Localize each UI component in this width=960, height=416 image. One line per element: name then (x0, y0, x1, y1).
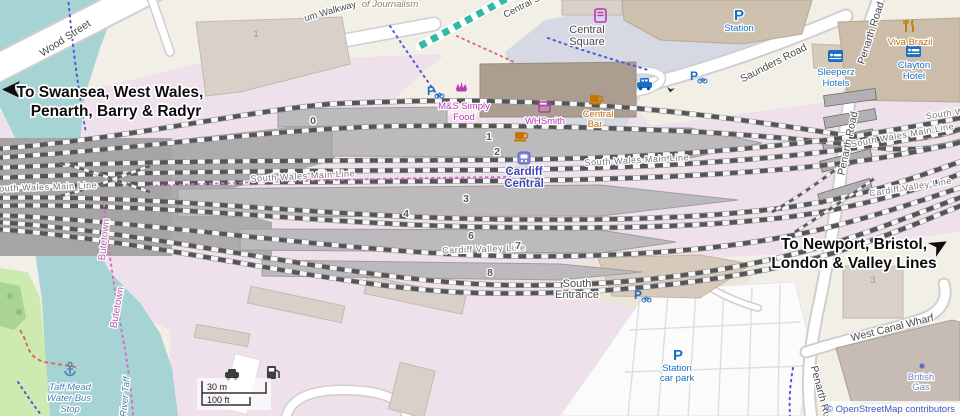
direction-east-line2: London & Valley Lines (771, 255, 936, 272)
scale-imperial: 100 ft (207, 395, 230, 405)
map-canvas[interactable]: P (0, 0, 960, 416)
building-3 (843, 266, 903, 318)
ms-simply-food-label: M&S Simply (438, 101, 490, 112)
tree-icon (7, 293, 13, 299)
central-square-label: Central (569, 24, 604, 36)
water-bus-stop-label: Taff Mead (49, 382, 92, 393)
platform-number: 3 (463, 193, 469, 205)
viva-brazil-label: Viva Brazil (888, 37, 933, 48)
svg-text:Central: Central (504, 178, 544, 190)
of-journalism-label: of Journalism (362, 0, 419, 10)
platform-number: 2 (494, 146, 500, 158)
office-dot-icon (919, 363, 924, 368)
sleeperz-label: Sleeperz (817, 67, 855, 78)
svg-text:Station: Station (724, 23, 754, 34)
platform-number: 1 (486, 131, 492, 143)
building-pink (562, 0, 622, 15)
svg-text:car park: car park (660, 373, 695, 384)
direction-east-line1: To Newport, Bristol, (781, 236, 927, 253)
east-arrow-icon (928, 235, 951, 257)
tree-icon (16, 309, 22, 315)
svg-text:Hotels: Hotels (823, 78, 850, 89)
oneway-arrow-icon (666, 87, 675, 93)
svg-text:Water Bus: Water Bus (47, 393, 91, 404)
osm-attribution-link[interactable]: © OpenStreetMap contributors (826, 404, 955, 415)
house-number: 3 (870, 275, 875, 286)
scale-bar: 30 m 100 ft (197, 378, 271, 410)
svg-text:P: P (634, 288, 642, 302)
direction-west: To Swansea, West Wales, Penarth, Barry &… (2, 81, 203, 120)
railway-station-icon (518, 152, 530, 164)
platform-number: 4 (403, 208, 409, 220)
direction-west-line2: Penarth, Barry & Radyr (31, 103, 202, 120)
hotel-icon (828, 50, 843, 62)
svg-text:Food: Food (453, 112, 475, 123)
cardiff-central-label: Cardiff (505, 166, 542, 178)
svg-text:Bar: Bar (588, 119, 603, 130)
scale-metric: 30 m (207, 382, 227, 392)
platform-number: 7 (515, 240, 521, 252)
whsmith-label: WHSmith (525, 116, 565, 127)
svg-text:Square: Square (569, 36, 604, 48)
central-s-road-label: Central S (502, 0, 542, 21)
platform-number: 0 (310, 115, 316, 127)
map-svg: P (0, 0, 960, 416)
carpark-parking-label: P (673, 347, 683, 364)
station-parking-label: P (734, 7, 744, 24)
svg-text:Stop: Stop (60, 404, 80, 415)
svg-text:Hotel: Hotel (903, 71, 925, 82)
attribution[interactable]: © OpenStreetMap contributors (826, 401, 960, 416)
direction-west-line1: To Swansea, West Wales, (17, 84, 204, 101)
svg-text:Gas: Gas (912, 382, 930, 393)
svg-text:P: P (690, 69, 698, 83)
svg-text:Entrance: Entrance (555, 289, 599, 301)
platform-number: 6 (468, 230, 474, 242)
clayton-label: Clayton (898, 60, 930, 71)
house-number: 1 (253, 29, 258, 40)
platform-number: 8 (487, 267, 493, 279)
svg-text:P: P (427, 84, 435, 98)
